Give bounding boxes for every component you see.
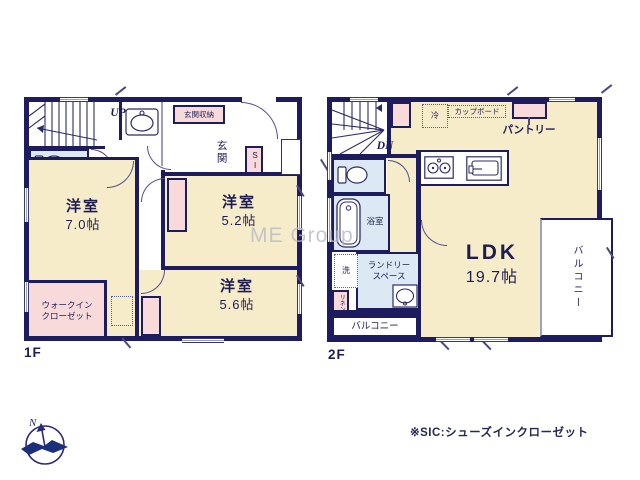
washbasin-icon: [125, 104, 159, 138]
pantry-closet: [512, 102, 547, 119]
door-arc: [141, 178, 165, 202]
entrance-storage-label: 玄関収納: [175, 107, 223, 122]
window: [549, 97, 575, 102]
floor2-plan: DN 冷 カップボード パントリー: [327, 97, 619, 349]
wall: [135, 157, 139, 280]
flip-mark: [507, 86, 518, 95]
stove-icon: [424, 156, 454, 179]
stairs-down-label: DN: [372, 140, 398, 154]
compass-north-label: N: [28, 417, 37, 429]
bathroom-label: 浴室: [361, 216, 389, 226]
compass-icon: N: [18, 412, 72, 470]
balcony-rear-label: バルコニー: [334, 318, 416, 335]
floor2-label: 2F: [328, 347, 346, 362]
entrance-label: 玄関: [215, 130, 228, 174]
window: [24, 188, 29, 222]
window: [24, 282, 29, 312]
room-5_6-closet: [141, 296, 161, 336]
balcony-door-window: [436, 337, 470, 342]
window: [60, 97, 88, 102]
pantry-label: パントリー: [484, 124, 574, 137]
entrance-porch: [281, 139, 301, 175]
balcony-rear: バルコニー: [332, 316, 418, 337]
washbasin-icon: [392, 284, 418, 308]
front-door-arc: [241, 102, 278, 139]
sic-footnote: ※SIC:シューズインクローゼット: [410, 424, 589, 440]
washer-label: 洗: [335, 266, 357, 276]
floorplan-canvas: UP 玄関収納 玄関 SIC 洋室: [0, 0, 640, 480]
window: [182, 338, 224, 343]
flip-mark: [115, 86, 126, 95]
flip-mark: [601, 84, 612, 93]
wall: [119, 102, 122, 140]
window: [350, 97, 378, 102]
balcony-side: バルコニー: [540, 218, 613, 337]
floor1-plan: UP 玄関収納 玄関 SIC 洋室: [24, 97, 302, 341]
fridge-label: 冷: [423, 111, 447, 121]
window: [597, 138, 602, 190]
room-5_2-closet: [167, 178, 187, 232]
watermark: ME Group: [250, 224, 354, 248]
floor1-label: 1F: [24, 345, 42, 360]
toilet-icon: [337, 164, 369, 186]
window: [327, 152, 332, 180]
laundry-label: ランドリー スペース: [358, 260, 420, 283]
room-5_6-label: 洋室 5.6帖: [181, 278, 293, 313]
balcony-side-label-wrap: バルコニー: [542, 220, 611, 335]
window: [297, 284, 302, 314]
walk-in-closet-label: ウォークイン クローゼット: [31, 300, 103, 323]
fridge-dotted-box: 冷: [422, 104, 448, 128]
washer-dotted-box: 洗: [334, 254, 358, 288]
front-door-opening: [242, 97, 276, 102]
cupboard-label: カップボード: [449, 107, 505, 116]
entrance-storage: 玄関収納: [173, 105, 225, 124]
furniture-dotted-box: [111, 296, 133, 326]
cupboard-dotted-box: カップボード: [448, 105, 506, 118]
stair-closet: [391, 102, 411, 128]
balcony-side-label: バルコニー: [569, 245, 584, 310]
balcony-door-window: [474, 337, 508, 342]
door-arc: [147, 146, 171, 170]
stairs-arrow: [37, 125, 44, 133]
kitchen-sink-icon: [466, 156, 502, 181]
room-7_0-label: 洋室 7.0帖: [35, 198, 131, 233]
ldk-label: LDK 19.7帖: [432, 240, 552, 287]
stairs-up-icon: [29, 102, 103, 146]
